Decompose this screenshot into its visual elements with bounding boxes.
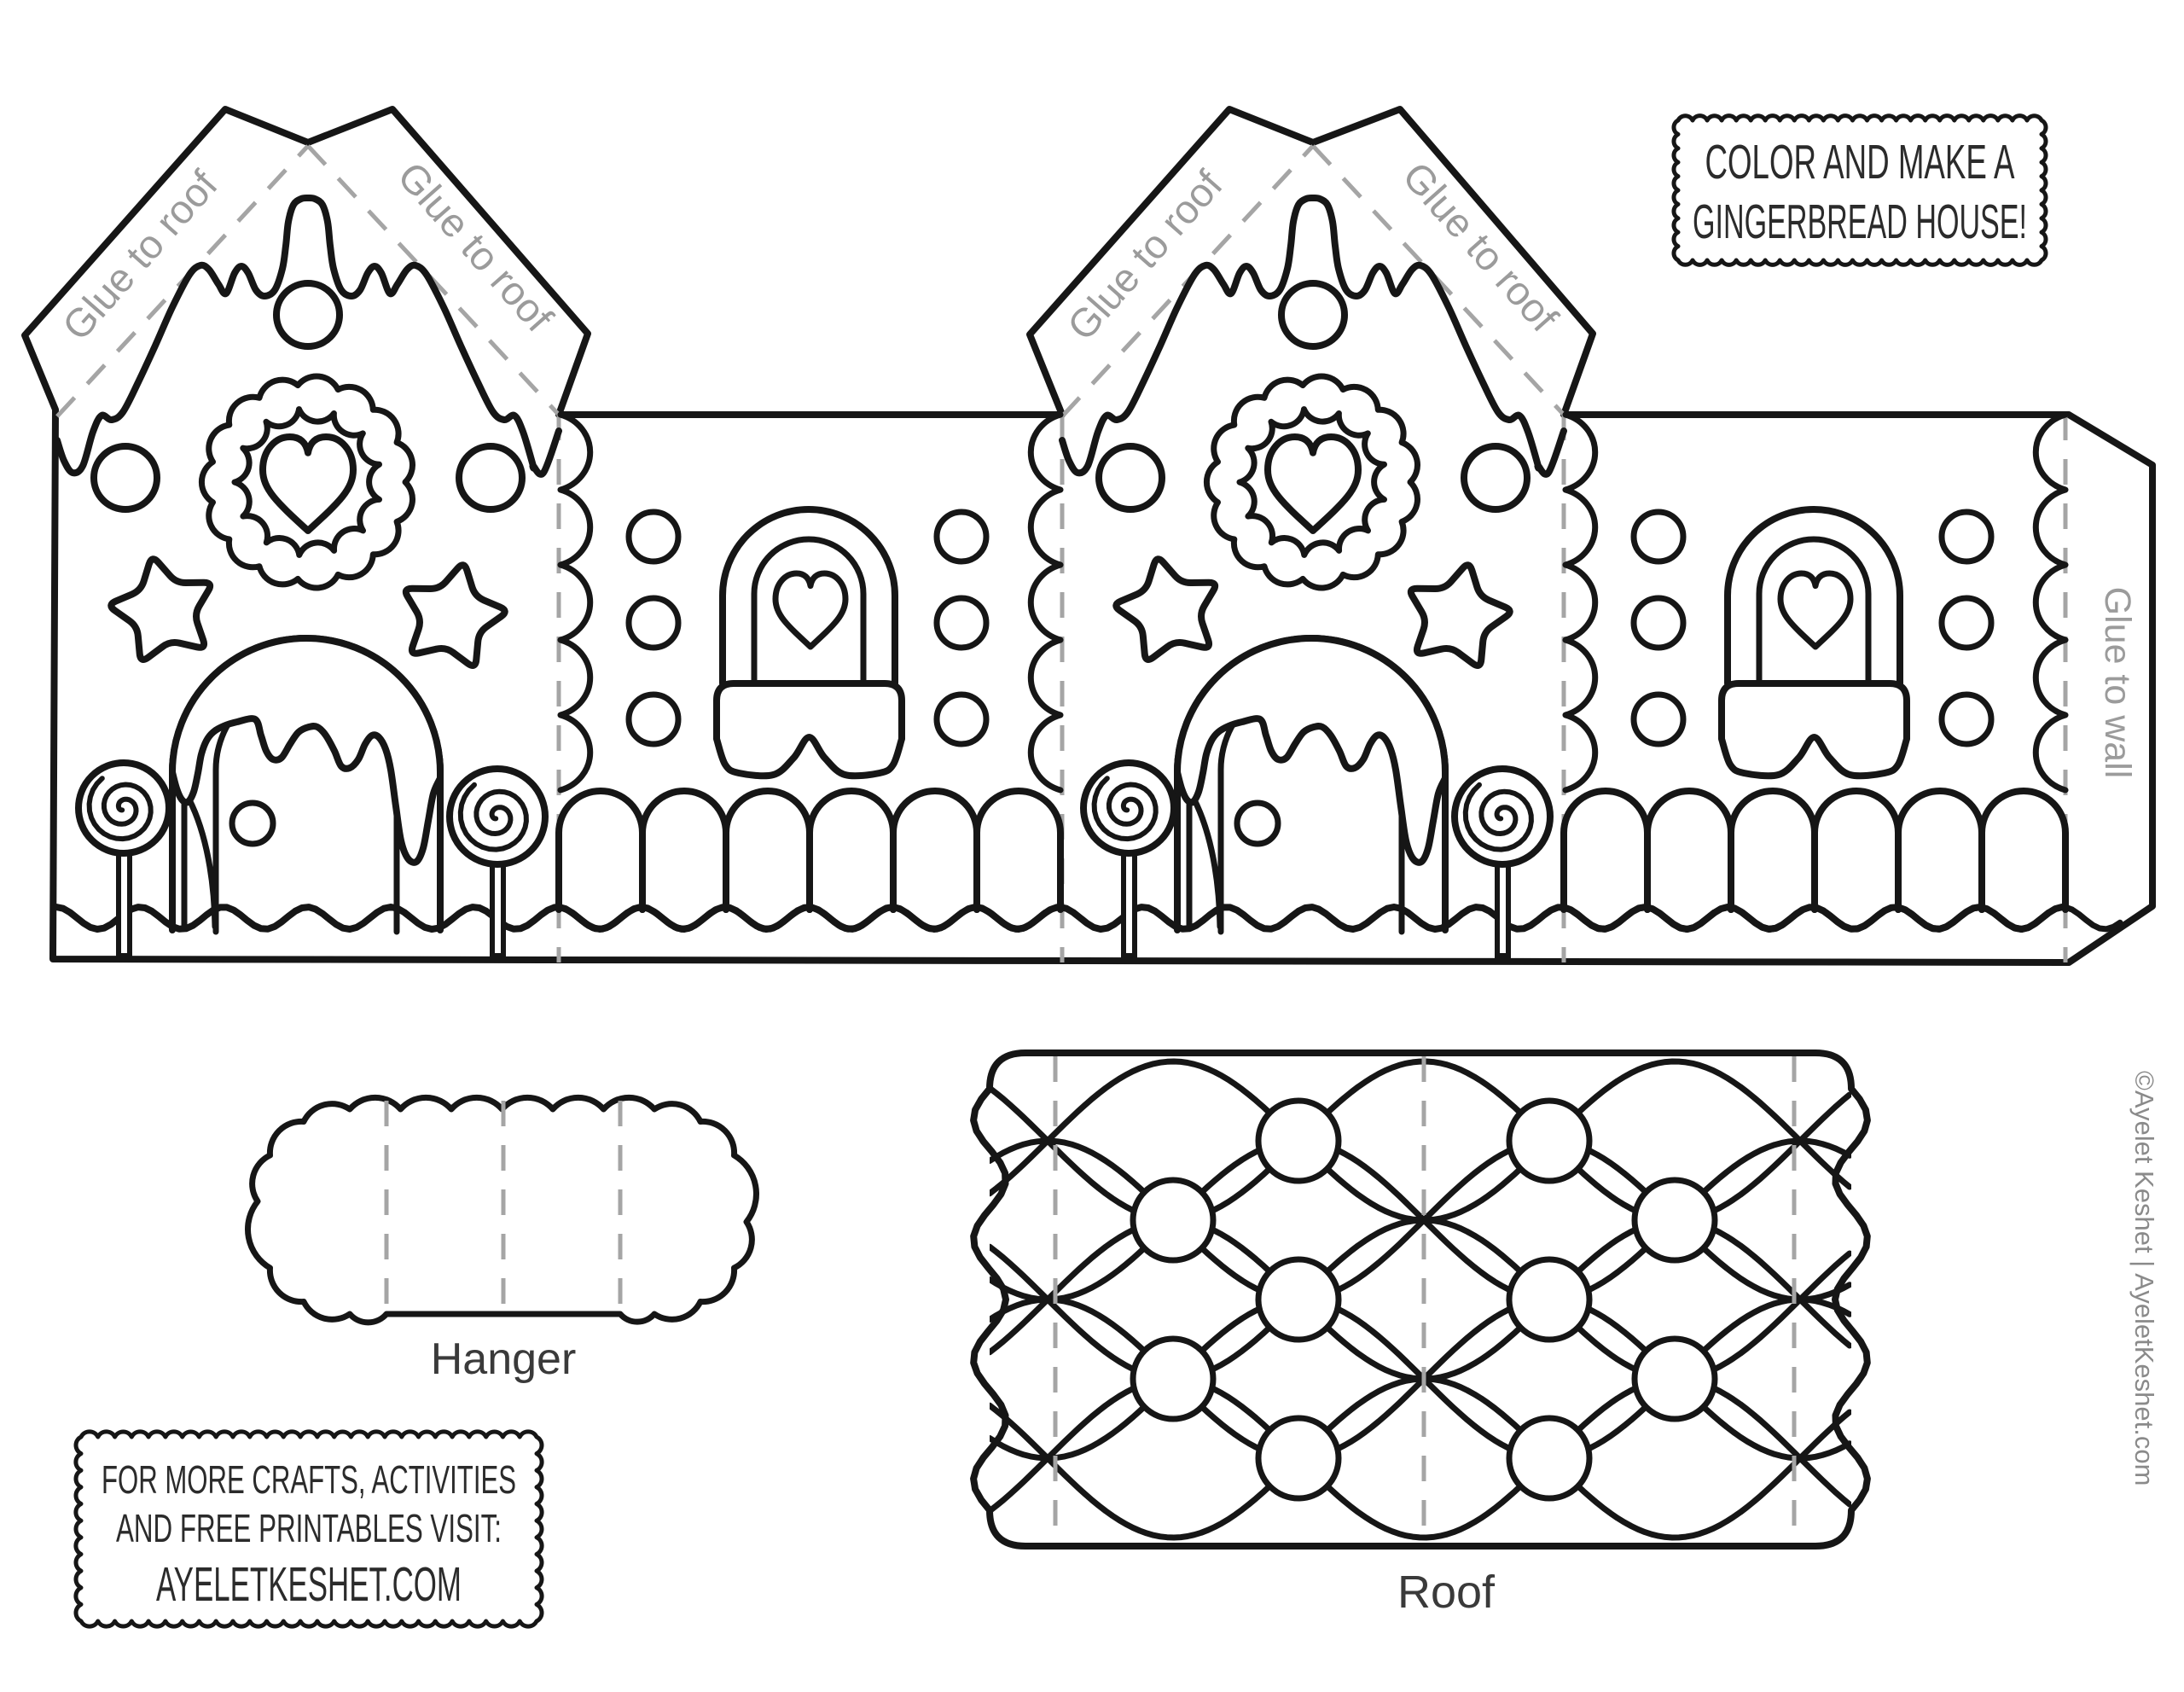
svg-text:Hanger: Hanger [431, 1334, 577, 1384]
svg-text:AYELETKESHET.COM: AYELETKESHET.COM [156, 1557, 462, 1612]
svg-text:GINGERBREAD HOUSE!: GINGERBREAD HOUSE! [1693, 195, 2027, 249]
svg-text:Glue to wall: Glue to wall [2097, 587, 2138, 779]
svg-text:COLOR AND MAKE A: COLOR AND MAKE A [1705, 135, 2015, 189]
svg-text:FOR MORE CRAFTS, ACTIVITIES: FOR MORE CRAFTS, ACTIVITIES [102, 1457, 516, 1502]
svg-text:Roof: Roof [1397, 1567, 1496, 1618]
svg-text:AND FREE PRINTABLES VISIT:: AND FREE PRINTABLES VISIT: [116, 1506, 502, 1550]
svg-text:©Ayelet Keshet | AyeletKeshet.: ©Ayelet Keshet | AyeletKeshet.com [2129, 1071, 2159, 1486]
